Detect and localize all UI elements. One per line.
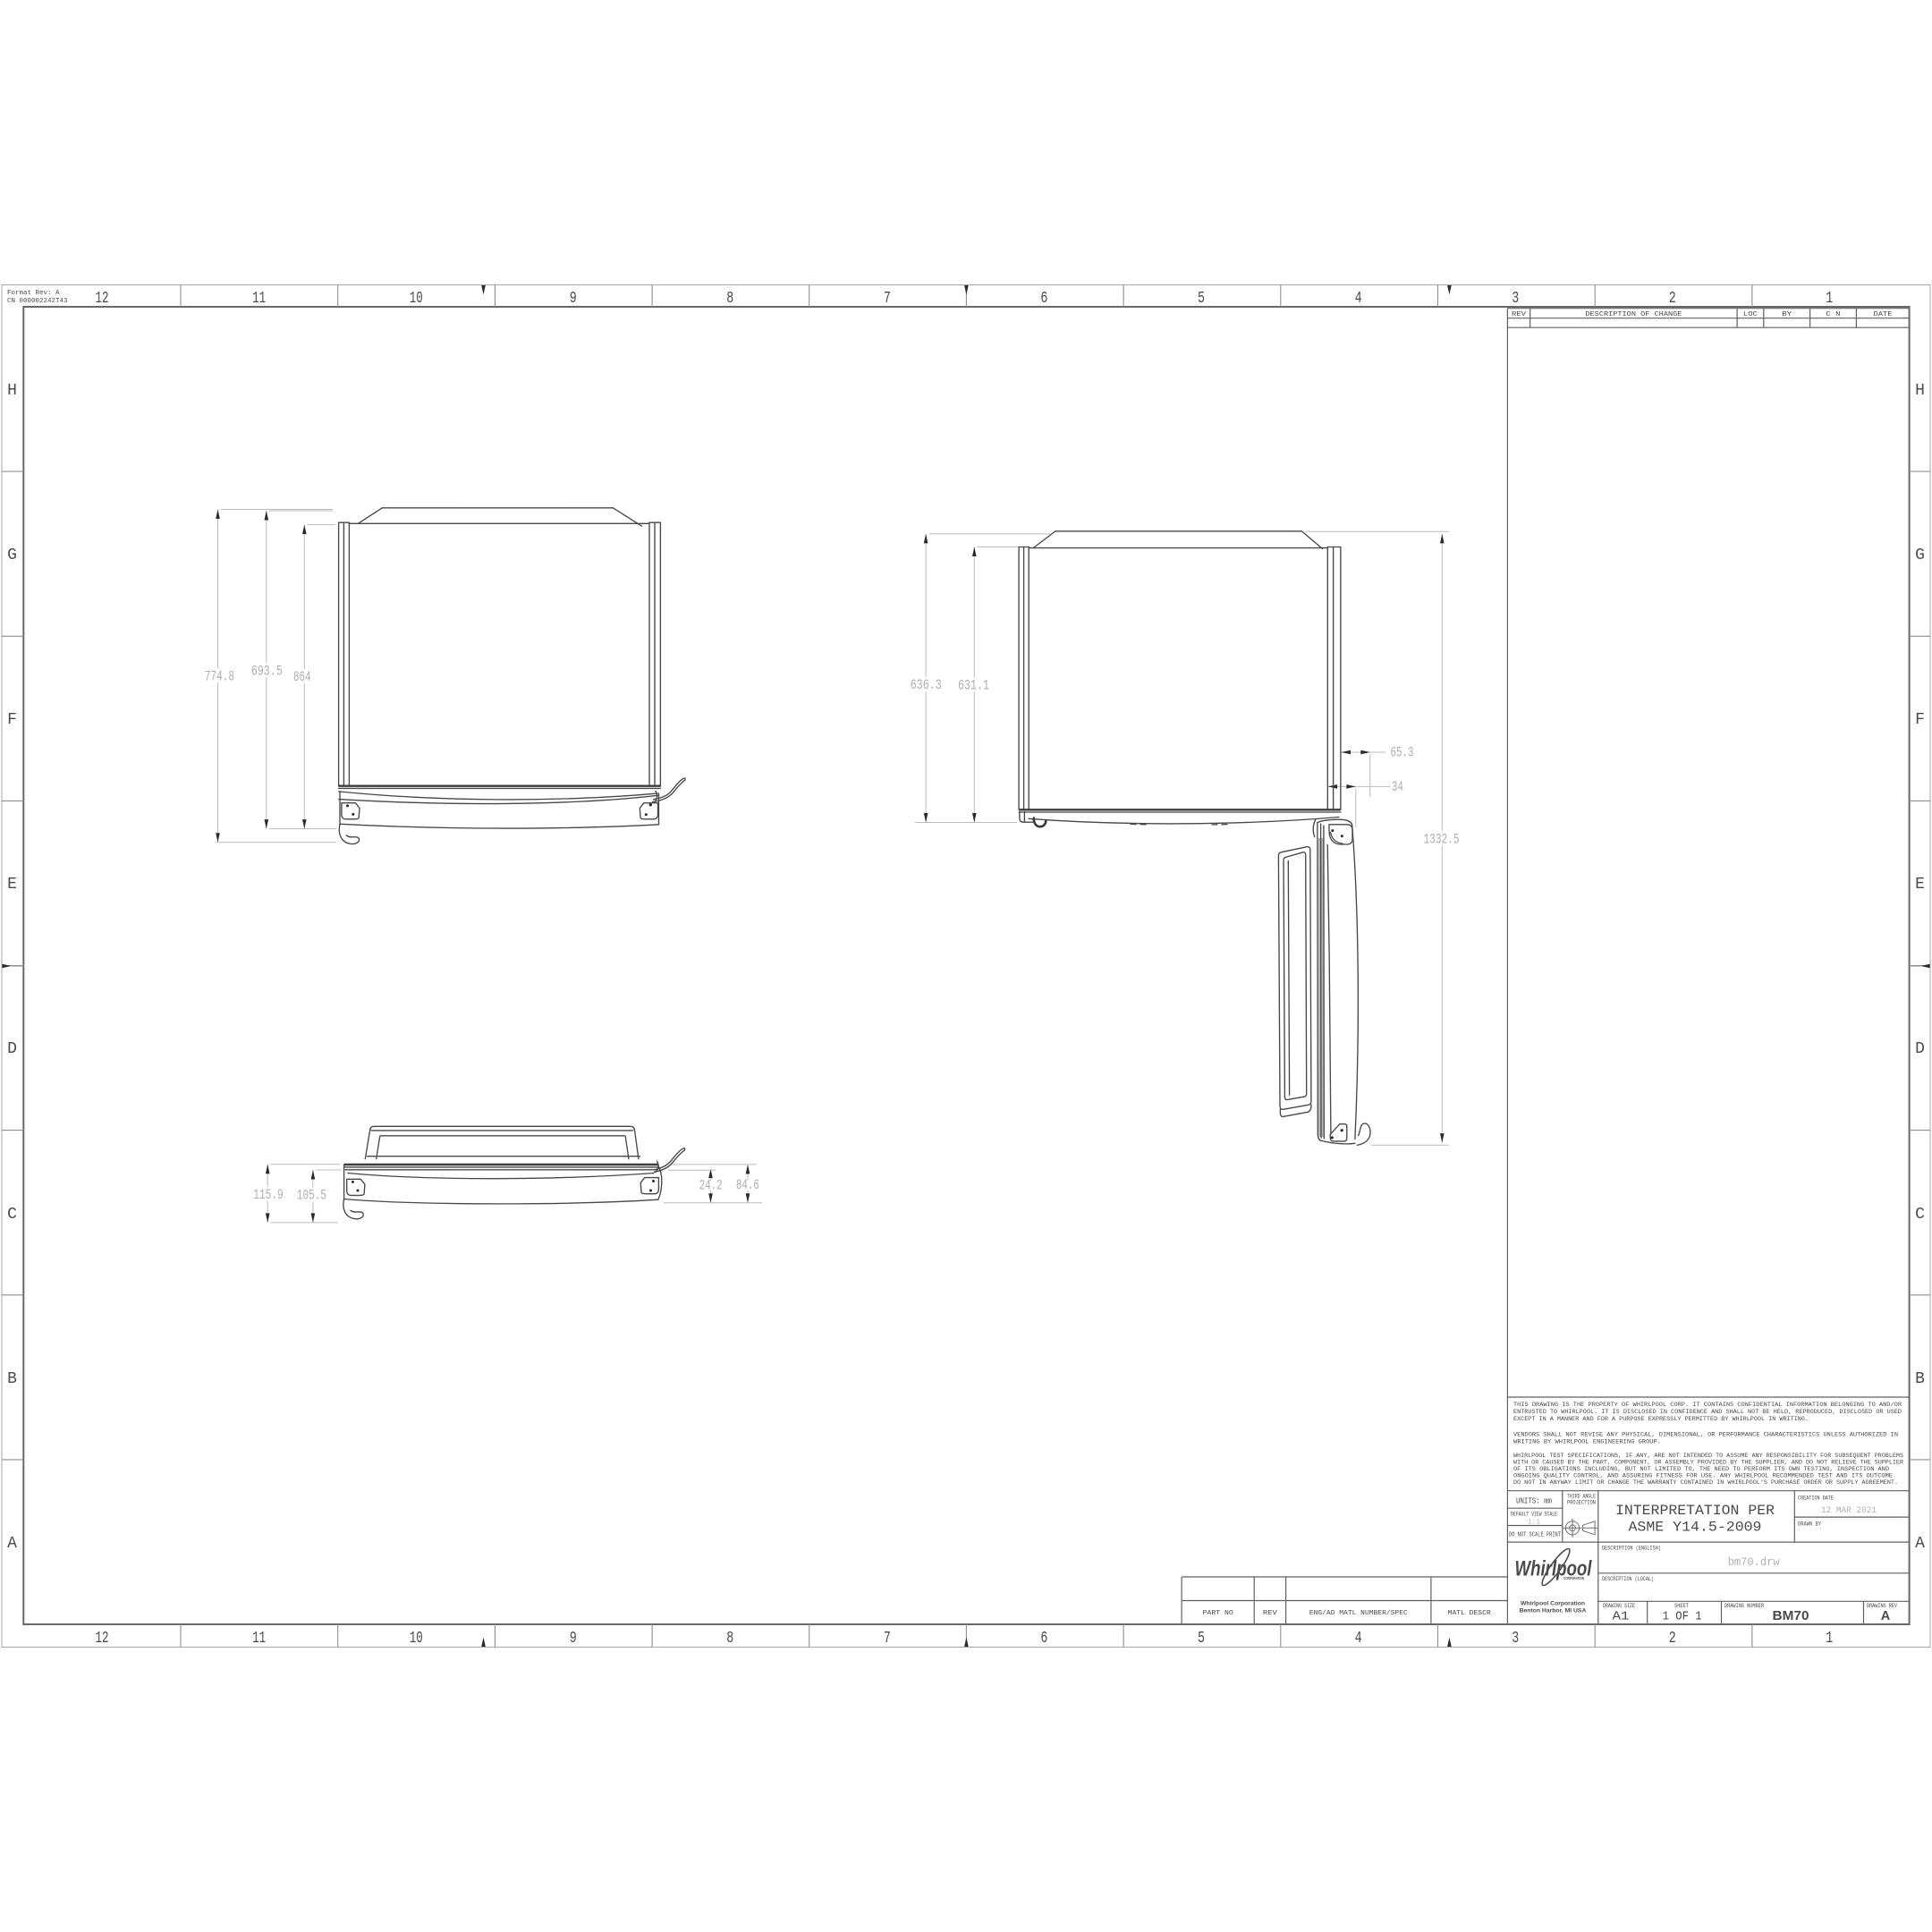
svg-text:EXCEPT IN A MANNER AND FOR A P: EXCEPT IN A MANNER AND FOR A PURPOSE EXP… — [1513, 1416, 1809, 1422]
svg-text:3: 3 — [1512, 290, 1519, 308]
svg-text:BY: BY — [1782, 311, 1792, 318]
svg-text:E: E — [1915, 876, 1925, 894]
svg-text:DRAWING NUMBER: DRAWING NUMBER — [1724, 1603, 1764, 1609]
svg-text:DEFAULT VIEW SCALE: DEFAULT VIEW SCALE — [1511, 1512, 1557, 1518]
svg-text:631.1: 631.1 — [958, 677, 989, 693]
svg-text:10: 10 — [410, 290, 423, 308]
svg-text:12: 12 — [96, 1630, 109, 1648]
svg-text:Benton Harbor, MI USA: Benton Harbor, MI USA — [1520, 1608, 1587, 1614]
svg-text:SHEET: SHEET — [1674, 1603, 1689, 1609]
svg-text:D: D — [7, 1040, 17, 1058]
svg-text:WRITING BY WHIRLPOOL ENGINEERI: WRITING BY WHIRLPOOL ENGINEERING GROUP. — [1513, 1439, 1661, 1445]
svg-text:bm70.drw: bm70.drw — [1728, 1555, 1780, 1569]
svg-text:CREATION DATE: CREATION DATE — [1798, 1496, 1834, 1502]
svg-text:A: A — [1881, 1609, 1891, 1623]
svg-text:THIS DRAWING IS THE PROPERTY O: THIS DRAWING IS THE PROPERTY OF WHIRLPOO… — [1513, 1402, 1902, 1408]
svg-text:DESCRIPTION (LOCAL): DESCRIPTION (LOCAL) — [1602, 1576, 1654, 1582]
svg-text:3: 3 — [1512, 1630, 1519, 1648]
svg-text:PROJECTION: PROJECTION — [1567, 1500, 1596, 1506]
svg-text:A: A — [1915, 1535, 1925, 1553]
svg-text:B: B — [7, 1370, 17, 1388]
svg-text:4: 4 — [1355, 1630, 1362, 1648]
svg-text:A: A — [7, 1535, 17, 1553]
svg-text:CORPORATION: CORPORATION — [1563, 1576, 1584, 1580]
svg-text:DO NOT IN ANYWAY LIMIT OR CHAN: DO NOT IN ANYWAY LIMIT OR CHANGE THE WAR… — [1513, 1479, 1898, 1486]
svg-text:9: 9 — [570, 290, 577, 308]
svg-text:105.5: 105.5 — [297, 1188, 326, 1204]
svg-text:H: H — [7, 382, 17, 400]
svg-text:PART NO: PART NO — [1203, 1610, 1234, 1617]
svg-text:1 OF 1: 1 OF 1 — [1663, 1611, 1702, 1624]
svg-text:34: 34 — [1392, 779, 1403, 795]
svg-text:H: H — [1915, 382, 1925, 400]
svg-text:THIRD ANGLE: THIRD ANGLE — [1567, 1494, 1596, 1500]
svg-text:10: 10 — [410, 1630, 423, 1648]
svg-text:115.9: 115.9 — [253, 1187, 283, 1203]
svg-text:BM70: BM70 — [1773, 1609, 1809, 1623]
svg-text:2: 2 — [1669, 1630, 1676, 1648]
svg-text:9: 9 — [570, 1630, 577, 1648]
svg-text:OF ITS OBLIGATIONS INCLUDING,: OF ITS OBLIGATIONS INCLUDING, BUT NOT LI… — [1513, 1466, 1889, 1472]
svg-text:24.2: 24.2 — [699, 1178, 723, 1194]
svg-text:864: 864 — [293, 669, 311, 685]
svg-text:F: F — [1915, 711, 1925, 729]
svg-text:7: 7 — [884, 290, 891, 308]
svg-text:1:1: 1:1 — [1528, 1518, 1540, 1527]
svg-text:636.3: 636.3 — [911, 677, 942, 693]
svg-text:1: 1 — [1826, 290, 1833, 308]
svg-text:B: B — [1915, 1370, 1925, 1388]
svg-text:65.3: 65.3 — [1391, 745, 1414, 761]
svg-text:D: D — [1915, 1040, 1925, 1058]
svg-text:C N: C N — [1826, 311, 1841, 318]
svg-text:C: C — [7, 1206, 17, 1224]
svg-text:DESCRIPTION OF CHANGE: DESCRIPTION OF CHANGE — [1585, 311, 1682, 318]
svg-text:5: 5 — [1198, 290, 1205, 308]
svg-text:8: 8 — [726, 1630, 733, 1648]
svg-text:INTERPRETATION PER: INTERPRETATION PER — [1615, 1503, 1775, 1519]
svg-text:DO NOT SCALE PRINT: DO NOT SCALE PRINT — [1509, 1532, 1561, 1539]
svg-text:8: 8 — [726, 290, 733, 308]
svg-text:CN 000002242T43: CN 000002242T43 — [7, 298, 68, 305]
svg-text:MATL DESCR: MATL DESCR — [1448, 1610, 1492, 1617]
svg-text:6: 6 — [1040, 290, 1047, 308]
svg-text:2: 2 — [1669, 290, 1676, 308]
svg-text:ENTRUSTED TO WHIRLPOOL. IT IS: ENTRUSTED TO WHIRLPOOL. IT IS DISCLOSED … — [1513, 1409, 1902, 1415]
svg-text:774.8: 774.8 — [205, 668, 234, 684]
svg-text:Whirlpool Corporation: Whirlpool Corporation — [1521, 1601, 1585, 1607]
svg-text:WHIRLPOOL TEST SPECIFICATIONS,: WHIRLPOOL TEST SPECIFICATIONS, IF ANY, A… — [1513, 1453, 1903, 1459]
svg-text:693.5: 693.5 — [251, 663, 283, 679]
svg-text:UNITS: mm: UNITS: mm — [1516, 1497, 1552, 1506]
svg-text:1: 1 — [1826, 1630, 1833, 1648]
svg-text:REV: REV — [1512, 311, 1527, 318]
svg-text:VENDORS SHALL NOT REVISE ANY P: VENDORS SHALL NOT REVISE ANY PHYSICAL, D… — [1513, 1432, 1898, 1438]
svg-text:WITH OR CAUSED BY THE PART, CO: WITH OR CAUSED BY THE PART, COMPONENT, O… — [1513, 1460, 1903, 1466]
svg-text:DRAWN BY: DRAWN BY — [1798, 1521, 1821, 1528]
svg-text:E: E — [7, 876, 17, 894]
svg-text:Format Rev: A: Format Rev: A — [7, 290, 60, 297]
svg-text:G: G — [1915, 547, 1925, 564]
svg-text:DATE: DATE — [1874, 311, 1893, 318]
svg-text:DESCRIPTION (ENGLISH): DESCRIPTION (ENGLISH) — [1602, 1546, 1661, 1552]
svg-text:7: 7 — [884, 1630, 891, 1648]
svg-text:11: 11 — [252, 290, 266, 308]
svg-text:12 MAR 2021: 12 MAR 2021 — [1821, 1506, 1877, 1516]
svg-text:C: C — [1915, 1206, 1925, 1224]
svg-text:6: 6 — [1040, 1630, 1047, 1648]
svg-text:F: F — [7, 711, 17, 729]
svg-text:DRAWING SIZE: DRAWING SIZE — [1603, 1603, 1635, 1609]
svg-text:ONGOING QUALITY CONTROL, AND A: ONGOING QUALITY CONTROL, AND ASSURING FI… — [1513, 1473, 1893, 1479]
svg-text:A1: A1 — [1613, 1611, 1630, 1624]
svg-text:ENG/AD MATL NUMBER/SPEC: ENG/AD MATL NUMBER/SPEC — [1309, 1610, 1409, 1617]
svg-text:4: 4 — [1355, 290, 1362, 308]
svg-text:84.6: 84.6 — [736, 1177, 759, 1193]
svg-text:REV: REV — [1263, 1610, 1278, 1617]
svg-text:5: 5 — [1198, 1630, 1205, 1648]
svg-text:LOC: LOC — [1743, 311, 1758, 318]
svg-text:ASME Y14.5-2009: ASME Y14.5-2009 — [1629, 1520, 1762, 1536]
svg-text:11: 11 — [252, 1630, 266, 1648]
svg-text:1332.5: 1332.5 — [1424, 832, 1460, 848]
svg-text:DRAWING REV: DRAWING REV — [1867, 1603, 1897, 1609]
svg-text:G: G — [7, 547, 17, 564]
svg-text:12: 12 — [96, 290, 109, 308]
